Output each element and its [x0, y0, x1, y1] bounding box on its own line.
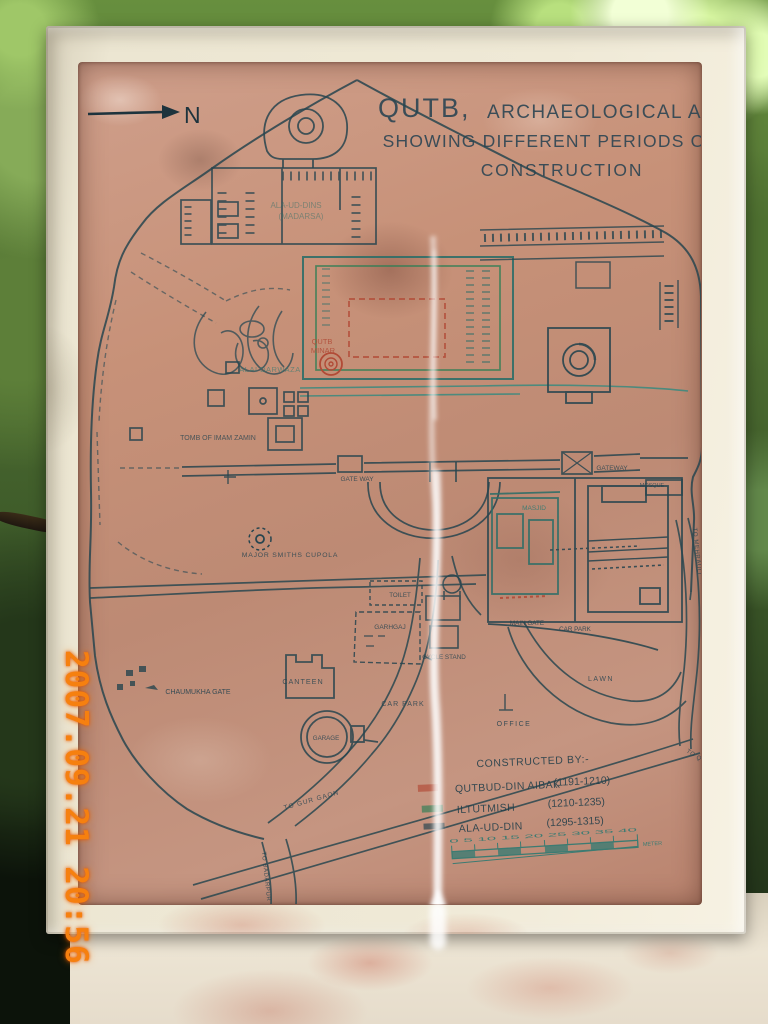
photo-scene: QUTB, ARCHAEOLOGICAL AREA SHOWING DIFFER…	[0, 0, 768, 1024]
water-streak-tail	[430, 902, 446, 950]
map-plate	[78, 62, 702, 905]
camera-timestamp: 2007.09.21 20:56	[58, 650, 94, 965]
